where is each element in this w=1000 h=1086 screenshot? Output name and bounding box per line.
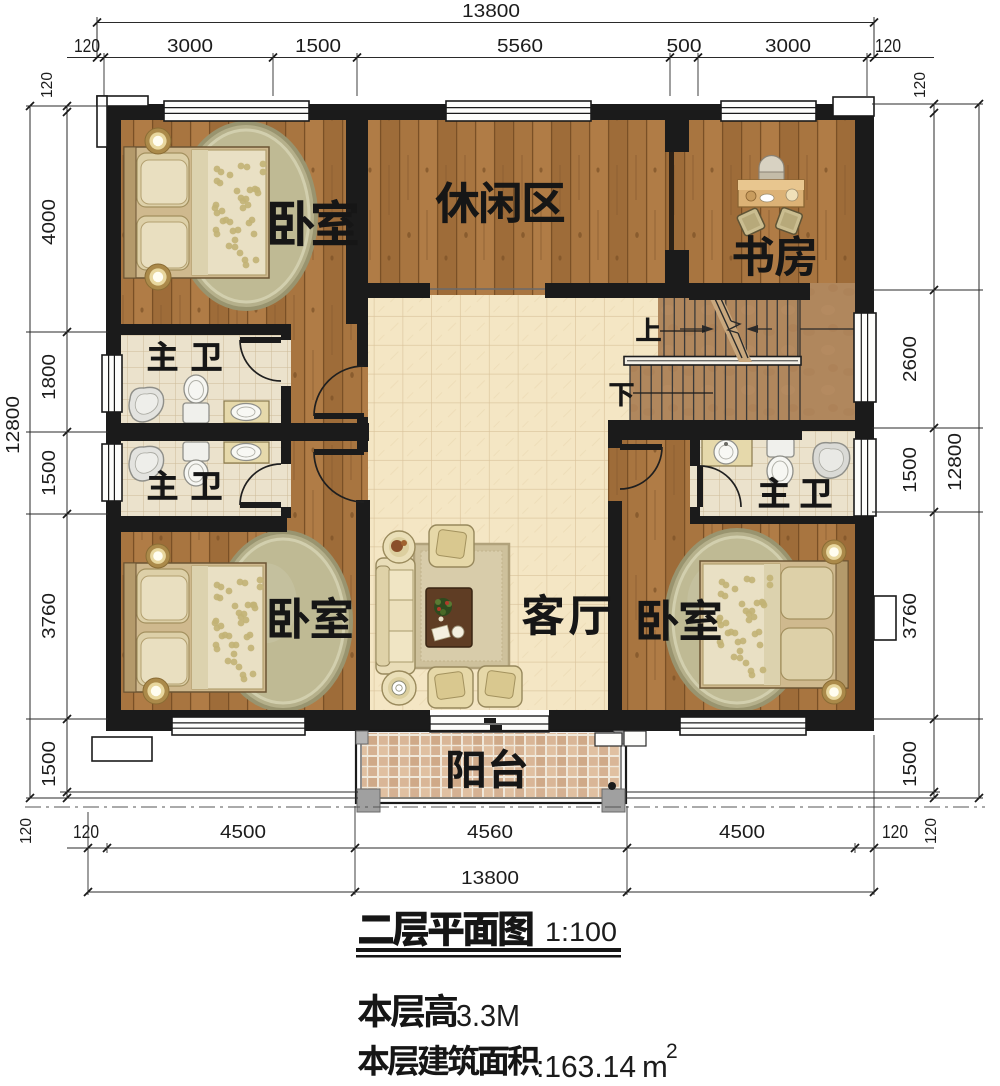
svg-text:2: 2 xyxy=(666,1040,678,1063)
svg-text:1800: 1800 xyxy=(39,354,59,400)
svg-text:500: 500 xyxy=(667,36,702,56)
svg-text:m: m xyxy=(642,1049,668,1084)
svg-text:4500: 4500 xyxy=(220,822,266,842)
svg-text::163.14: :163.14 xyxy=(536,1049,636,1084)
svg-text:3760: 3760 xyxy=(39,593,59,639)
svg-text:1500: 1500 xyxy=(900,447,920,493)
svg-text:2600: 2600 xyxy=(900,336,920,382)
svg-text:120: 120 xyxy=(912,72,929,98)
svg-text:1:100: 1:100 xyxy=(545,917,617,947)
svg-text:120: 120 xyxy=(18,818,35,844)
svg-text:12800: 12800 xyxy=(945,433,965,491)
svg-text:1500: 1500 xyxy=(39,741,59,787)
svg-text:4560: 4560 xyxy=(467,822,513,842)
svg-text:3000: 3000 xyxy=(765,36,811,56)
svg-text:120: 120 xyxy=(923,818,940,844)
svg-text:120: 120 xyxy=(73,822,99,842)
svg-text:1500: 1500 xyxy=(295,36,341,56)
svg-text:3760: 3760 xyxy=(900,593,920,639)
svg-text:4500: 4500 xyxy=(719,822,765,842)
svg-text:120: 120 xyxy=(74,36,100,56)
svg-text:5560: 5560 xyxy=(497,36,543,56)
svg-text:3.3M: 3.3M xyxy=(456,998,520,1033)
svg-text:13800: 13800 xyxy=(462,1,520,21)
svg-text:12800: 12800 xyxy=(3,396,23,454)
svg-text:3000: 3000 xyxy=(167,36,213,56)
svg-text:13800: 13800 xyxy=(461,868,519,888)
svg-text:1500: 1500 xyxy=(39,450,59,496)
svg-text:120: 120 xyxy=(882,822,908,842)
svg-text:4000: 4000 xyxy=(39,199,59,245)
svg-text:1500: 1500 xyxy=(900,741,920,787)
svg-text:120: 120 xyxy=(875,36,901,56)
svg-text:120: 120 xyxy=(39,72,56,98)
